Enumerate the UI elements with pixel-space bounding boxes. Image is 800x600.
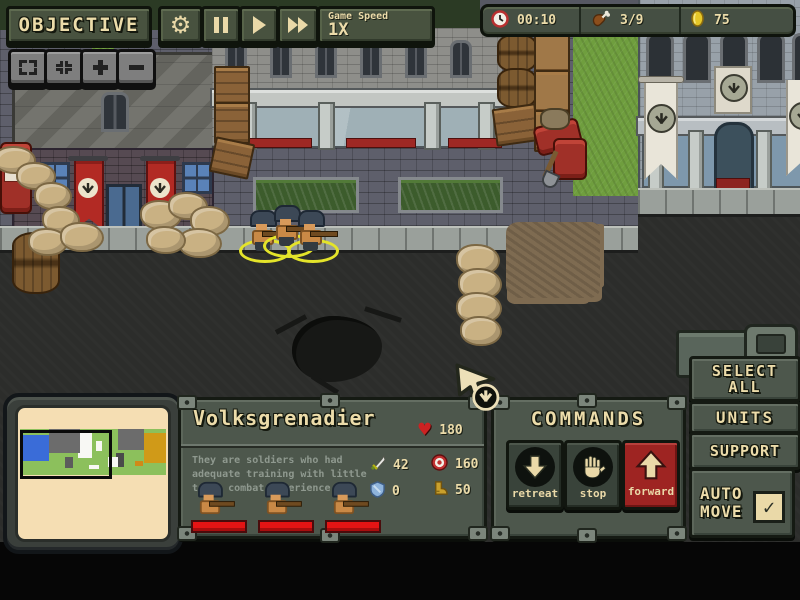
minimap-viewport[interactable] xyxy=(20,430,112,479)
soldier-legs xyxy=(303,242,318,251)
focus-icon xyxy=(56,61,72,74)
fast-forward-button[interactable] xyxy=(277,6,319,44)
unit-info-panel: Volksgrenadier ♥ 180 They are soldiers w… xyxy=(178,397,487,539)
commands-panel: COMMANDS retreat stop forward xyxy=(491,397,686,539)
target-icon xyxy=(431,454,448,475)
game-speed-value: 1X xyxy=(328,22,348,39)
attack-value: 42 xyxy=(393,458,409,473)
select-all-label-2: ALL xyxy=(728,379,761,395)
objective-button[interactable]: OBJECTIVE xyxy=(6,6,152,44)
unit-card[interactable] xyxy=(323,484,385,534)
center-building-window xyxy=(450,40,472,78)
hand-icon xyxy=(573,447,613,487)
play-button[interactable] xyxy=(239,6,279,44)
center-building-window xyxy=(360,40,382,78)
gold-group: 75 xyxy=(681,10,793,31)
units-button[interactable]: UNITS xyxy=(689,401,800,434)
left-building-dormer xyxy=(101,92,129,132)
banner-pole xyxy=(68,156,108,161)
sidewalk-right xyxy=(638,188,800,217)
hedge-planter xyxy=(398,177,503,213)
camera-focus-button[interactable] xyxy=(44,49,84,86)
health-group: ♥ 180 xyxy=(417,422,463,439)
game-speed-panel: Game Speed 1X xyxy=(317,6,435,44)
sandbag xyxy=(146,226,186,254)
clock-icon xyxy=(491,10,509,32)
supply-sack xyxy=(540,108,570,130)
center-building-window xyxy=(315,40,337,78)
defense-value: 0 xyxy=(392,484,400,499)
unit-name: Volksgrenadier xyxy=(193,406,376,430)
colonnade-column xyxy=(688,130,704,190)
colonnade-column xyxy=(756,130,772,190)
camera-expand-button[interactable] xyxy=(8,49,48,86)
unit-health-bar xyxy=(191,520,247,533)
faction-emblem xyxy=(720,74,748,102)
soldier-unit[interactable] xyxy=(294,210,328,256)
minimap-frame xyxy=(3,393,183,554)
pause-button[interactable] xyxy=(201,6,241,44)
select-all-button[interactable]: SELECT ALL xyxy=(689,356,800,402)
left-building-window xyxy=(182,162,212,194)
heart-icon: ♥ xyxy=(417,422,432,439)
auto-move-checkbox[interactable]: ✓ xyxy=(753,491,785,523)
unit-card[interactable] xyxy=(256,484,318,534)
minimap-block xyxy=(135,461,142,466)
wooden-crate xyxy=(214,66,250,106)
wooden-barrel xyxy=(497,34,537,72)
minimap-block xyxy=(144,433,166,463)
timer-group: 00:10 xyxy=(483,10,579,32)
unit-card[interactable] xyxy=(189,484,251,534)
range-value: 160 xyxy=(455,457,478,472)
unit-health-bar xyxy=(258,520,314,533)
expand-icon xyxy=(19,60,37,75)
rations-value: 3/9 xyxy=(620,13,643,28)
drumstick-icon xyxy=(591,9,610,32)
plus-icon xyxy=(93,60,108,75)
faction-emblem xyxy=(78,178,98,198)
timer-value: 00:10 xyxy=(517,13,556,28)
storefront-column xyxy=(424,102,441,150)
retreat-button[interactable]: retreat xyxy=(506,440,564,510)
minimap-block xyxy=(118,429,144,450)
faction-emblem xyxy=(647,104,676,133)
play-icon xyxy=(253,16,266,34)
banner-pole xyxy=(638,76,684,83)
faction-emblem xyxy=(150,178,170,198)
zoom-in-button[interactable] xyxy=(80,49,120,86)
red-doormat xyxy=(346,138,416,148)
minus-icon xyxy=(129,65,144,70)
auto-move-label: AUTO MOVE xyxy=(700,485,743,521)
panel-divider xyxy=(181,444,484,448)
arrow-up-icon xyxy=(635,449,667,485)
forward-label: forward xyxy=(628,485,674,498)
auto-move-toggle[interactable]: AUTO MOVE ✓ xyxy=(689,468,795,538)
stop-label: stop xyxy=(580,487,607,500)
minimap-map[interactable] xyxy=(20,429,166,475)
sword-icon xyxy=(369,454,387,476)
select-all-label-1: SELECT xyxy=(712,363,778,379)
cursor xyxy=(452,360,504,416)
right-building-arch-window xyxy=(792,33,800,83)
zoom-out-button[interactable] xyxy=(116,49,156,86)
game-viewport: OBJECTIVE ⚙ Game Speed 1X 00:10 xyxy=(0,0,800,600)
center-building-window xyxy=(270,40,292,78)
storefront-column xyxy=(318,102,335,150)
pause-icon xyxy=(214,17,228,33)
red-doormat xyxy=(448,138,502,148)
range-stat: 160 xyxy=(431,454,478,475)
right-building-arch-window xyxy=(683,33,711,83)
settings-button[interactable]: ⚙ xyxy=(158,6,203,44)
hedge-planter xyxy=(253,177,359,213)
wooden-barrel xyxy=(497,68,537,108)
speed-value: 50 xyxy=(455,483,471,498)
retreat-label: retreat xyxy=(512,487,558,500)
supply-barrel-red[interactable] xyxy=(553,138,587,180)
gold-value: 75 xyxy=(714,13,730,28)
unit-health-bar xyxy=(325,520,381,533)
health-value: 180 xyxy=(439,423,462,438)
rations-group: 3/9 xyxy=(581,9,679,32)
coin-icon xyxy=(691,10,704,31)
right-building-arch-window xyxy=(757,33,785,83)
soldier-rifle xyxy=(276,501,302,507)
check-icon: ✓ xyxy=(763,495,775,519)
commands-title: COMMANDS xyxy=(494,408,683,430)
arrow-down-icon xyxy=(515,447,555,487)
soldier-rifle xyxy=(343,501,369,507)
speed-stat: 50 xyxy=(431,480,471,501)
banner-pole xyxy=(140,156,180,161)
center-building-window xyxy=(405,40,427,78)
sandbag-stack xyxy=(460,316,502,346)
gear-icon: ⚙ xyxy=(170,13,192,37)
dirt-patch xyxy=(506,222,600,298)
sandbag xyxy=(60,222,104,252)
soldier-rifle xyxy=(209,501,235,507)
support-button[interactable]: SUPPORT xyxy=(689,432,800,470)
resource-bar: 00:10 3/9 75 xyxy=(480,4,796,37)
forward-button[interactable]: forward xyxy=(622,440,680,510)
soldier-rifle xyxy=(310,231,338,237)
fast-forward-icon xyxy=(288,17,308,33)
boot-icon xyxy=(431,480,448,501)
truck-window xyxy=(756,334,786,354)
attack-stat: 42 xyxy=(369,454,409,476)
stop-button[interactable]: stop xyxy=(564,440,622,510)
